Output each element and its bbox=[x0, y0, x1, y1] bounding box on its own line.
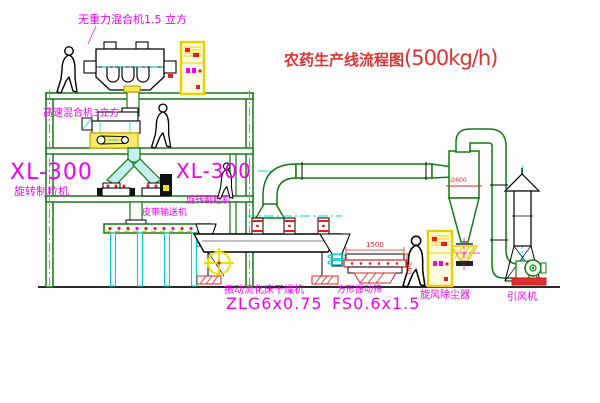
label-granulator-left: 旋转制粒机 bbox=[14, 186, 69, 198]
diagram-title-rate: (500kg/h) bbox=[404, 46, 497, 70]
control-cabinet-top bbox=[181, 42, 204, 94]
label-gravity-mixer: 无重力混合机1.5 立方 bbox=[78, 14, 187, 26]
dim-sieve-height: 340 bbox=[404, 261, 411, 274]
fluid-bed-dryer bbox=[194, 216, 342, 284]
label-dryer-model: ZLG6x0.75 bbox=[226, 296, 323, 313]
floor-slab-mid bbox=[46, 148, 253, 154]
dim-cyclone-diameter: ∅600 bbox=[450, 178, 467, 184]
label-high-speed-mixer: 高速混合机3立方 bbox=[43, 109, 119, 120]
base-pad-right bbox=[312, 276, 338, 284]
induced-draft-fan bbox=[512, 260, 546, 285]
label-fan: 引风机 bbox=[507, 293, 537, 304]
label-leader-line bbox=[88, 26, 96, 44]
dim-sieve-length: 1500 bbox=[366, 242, 384, 249]
diagram-title: 农药生产线流程图(500kg/h) bbox=[284, 46, 497, 70]
label-belt-conveyor: 皮带输送机 bbox=[142, 209, 187, 218]
label-xl300-left: XL-300 bbox=[10, 161, 93, 184]
label-cyclone: 旋风除尘器 bbox=[420, 291, 470, 302]
exhaust-duct bbox=[256, 162, 452, 218]
diagram-title-zh: 农药生产线流程图 bbox=[284, 51, 404, 69]
label-xl300-mid: XL-300 bbox=[176, 161, 252, 182]
label-sieve-model: FS0.6x1.5 bbox=[332, 296, 420, 313]
base-pad-left bbox=[197, 276, 221, 284]
vibrating-sieve bbox=[344, 247, 410, 284]
flow-diagram-canvas: 农药生产线流程图(500kg/h) 无重力混合机1.5 立方 高速混合机3立方 … bbox=[0, 0, 600, 403]
person-top-floor bbox=[57, 47, 77, 93]
person-second-floor bbox=[152, 104, 171, 148]
control-cabinet-right bbox=[428, 231, 452, 286]
label-granulator-mid: 旋转制粒机 bbox=[186, 197, 231, 206]
floor-slab-top bbox=[46, 93, 253, 99]
